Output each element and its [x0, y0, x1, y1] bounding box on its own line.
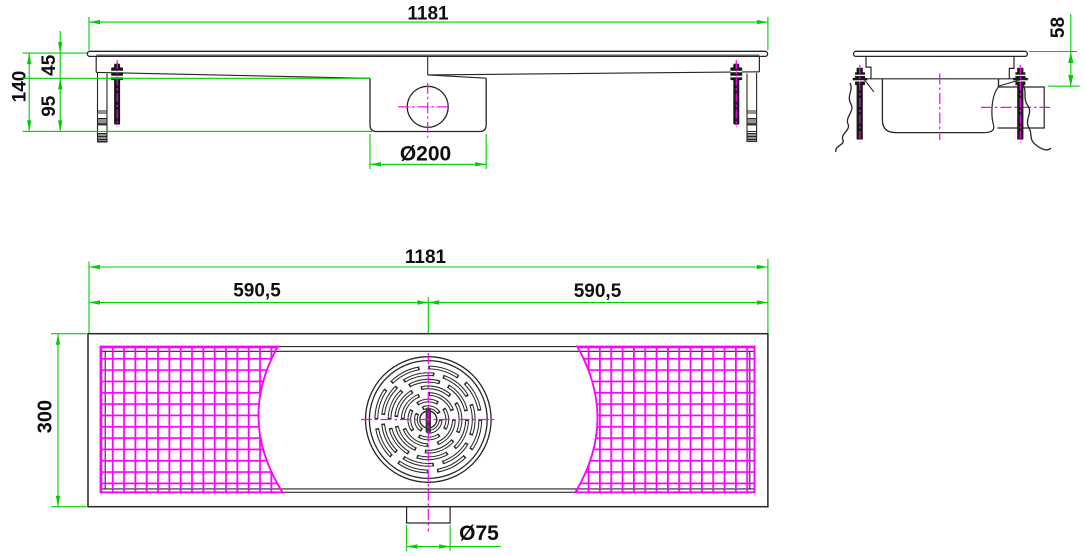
svg-text:300: 300: [35, 400, 57, 433]
svg-text:140: 140: [10, 71, 31, 103]
svg-text:Ø200: Ø200: [400, 143, 451, 166]
svg-text:Ø75: Ø75: [459, 522, 499, 545]
svg-text:1181: 1181: [405, 247, 447, 268]
svg-text:95: 95: [39, 95, 60, 117]
svg-text:45: 45: [39, 54, 60, 76]
svg-text:58: 58: [1048, 17, 1069, 38]
svg-text:590,5: 590,5: [233, 281, 281, 302]
svg-text:590,5: 590,5: [574, 281, 622, 302]
svg-text:1181: 1181: [407, 4, 449, 25]
